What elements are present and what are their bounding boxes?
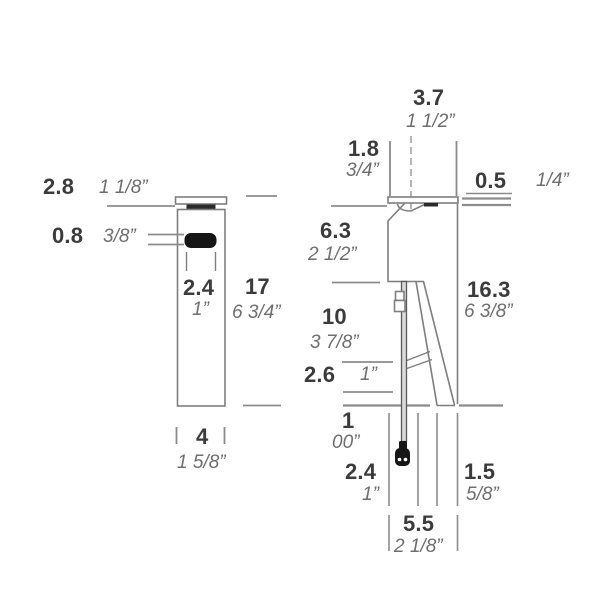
dim-side-head-depth-inch: 1 1/2” — [406, 112, 455, 131]
cap-underside-seal — [424, 203, 438, 207]
dim-side-base-back-inch: 5/8” — [466, 485, 499, 504]
leg-brace-line-1 — [406, 352, 431, 362]
dim-front-body-width-inch: 1 5/8” — [177, 453, 226, 472]
dim-side-base-back-cm: 1.5 — [464, 461, 495, 483]
dim-side-head-height-inch: 2 1/2” — [308, 245, 357, 264]
dim-side-stem-height-inch: 3 7/8” — [310, 333, 359, 352]
dim-side-stem-height-cm: 10 — [322, 306, 347, 328]
dim-front-body-height-cm: 17 — [245, 276, 270, 298]
dim-front-top-gap-cm: 2.8 — [43, 176, 74, 198]
dim-front-body-width-cm: 4 — [196, 426, 208, 448]
stem-fitting-lower — [395, 301, 406, 312]
dim-side-base-total-cm: 5.5 — [403, 513, 434, 535]
dim-front-aperture-width-cm: 2.4 — [183, 277, 214, 299]
dim-side-head-height-cm: 6.3 — [320, 220, 351, 242]
leg-back-edge — [424, 282, 455, 406]
dim-side-cap-thickness-inch: 1/4” — [536, 171, 569, 190]
front-cap-outline — [176, 197, 227, 204]
side-view — [388, 197, 458, 466]
dim-side-head-depth-cm: 3.7 — [413, 87, 444, 109]
dim-side-ground-clearance-cm: 1 — [342, 410, 354, 432]
plug-pin-hole-right — [404, 458, 408, 462]
stem-fitting-upper — [396, 292, 405, 301]
dim-side-base-front-cm: 2.4 — [345, 461, 376, 483]
leg-front-edge — [416, 282, 437, 406]
dim-side-base-front-inch: 1” — [362, 485, 379, 504]
dim-side-cap-overhang-cm: 1.8 — [348, 138, 379, 160]
dim-side-lower-gap-inch: 1” — [360, 365, 377, 384]
cable-plug-neck — [399, 441, 407, 449]
plug-pin-hole-left — [398, 458, 402, 462]
dim-front-aperture-height-inch: 3/8” — [103, 227, 136, 246]
dim-side-ground-clearance-inch: 00” — [332, 433, 359, 452]
leg-brace-line-2 — [406, 360, 433, 370]
dim-side-base-total-inch: 2 1/8” — [394, 537, 443, 556]
front-light-aperture — [185, 233, 217, 248]
dim-side-lower-gap-cm: 2.6 — [304, 364, 335, 386]
dim-side-overall-height-inch: 6 3/8” — [464, 302, 513, 321]
side-head-outline — [388, 204, 424, 282]
dim-side-cap-thickness-cm: 0.5 — [475, 170, 506, 192]
cable-plug-body — [395, 448, 410, 466]
dim-front-aperture-width-inch: 1” — [192, 300, 209, 319]
dim-front-body-height-inch: 6 3/4” — [232, 303, 281, 322]
dim-front-aperture-height-cm: 0.8 — [52, 225, 83, 247]
dim-side-overall-height-cm: 16.3 — [467, 279, 511, 301]
dim-front-top-gap-inch: 1 1/8” — [99, 178, 148, 197]
drawing-canvas: 2.8 1 1/8” 0.8 3/8” 2.4 1” 17 6 3/4” 4 1… — [0, 0, 600, 600]
side-cap-outline — [388, 197, 458, 203]
dim-side-cap-overhang-inch: 3/4” — [346, 161, 379, 180]
